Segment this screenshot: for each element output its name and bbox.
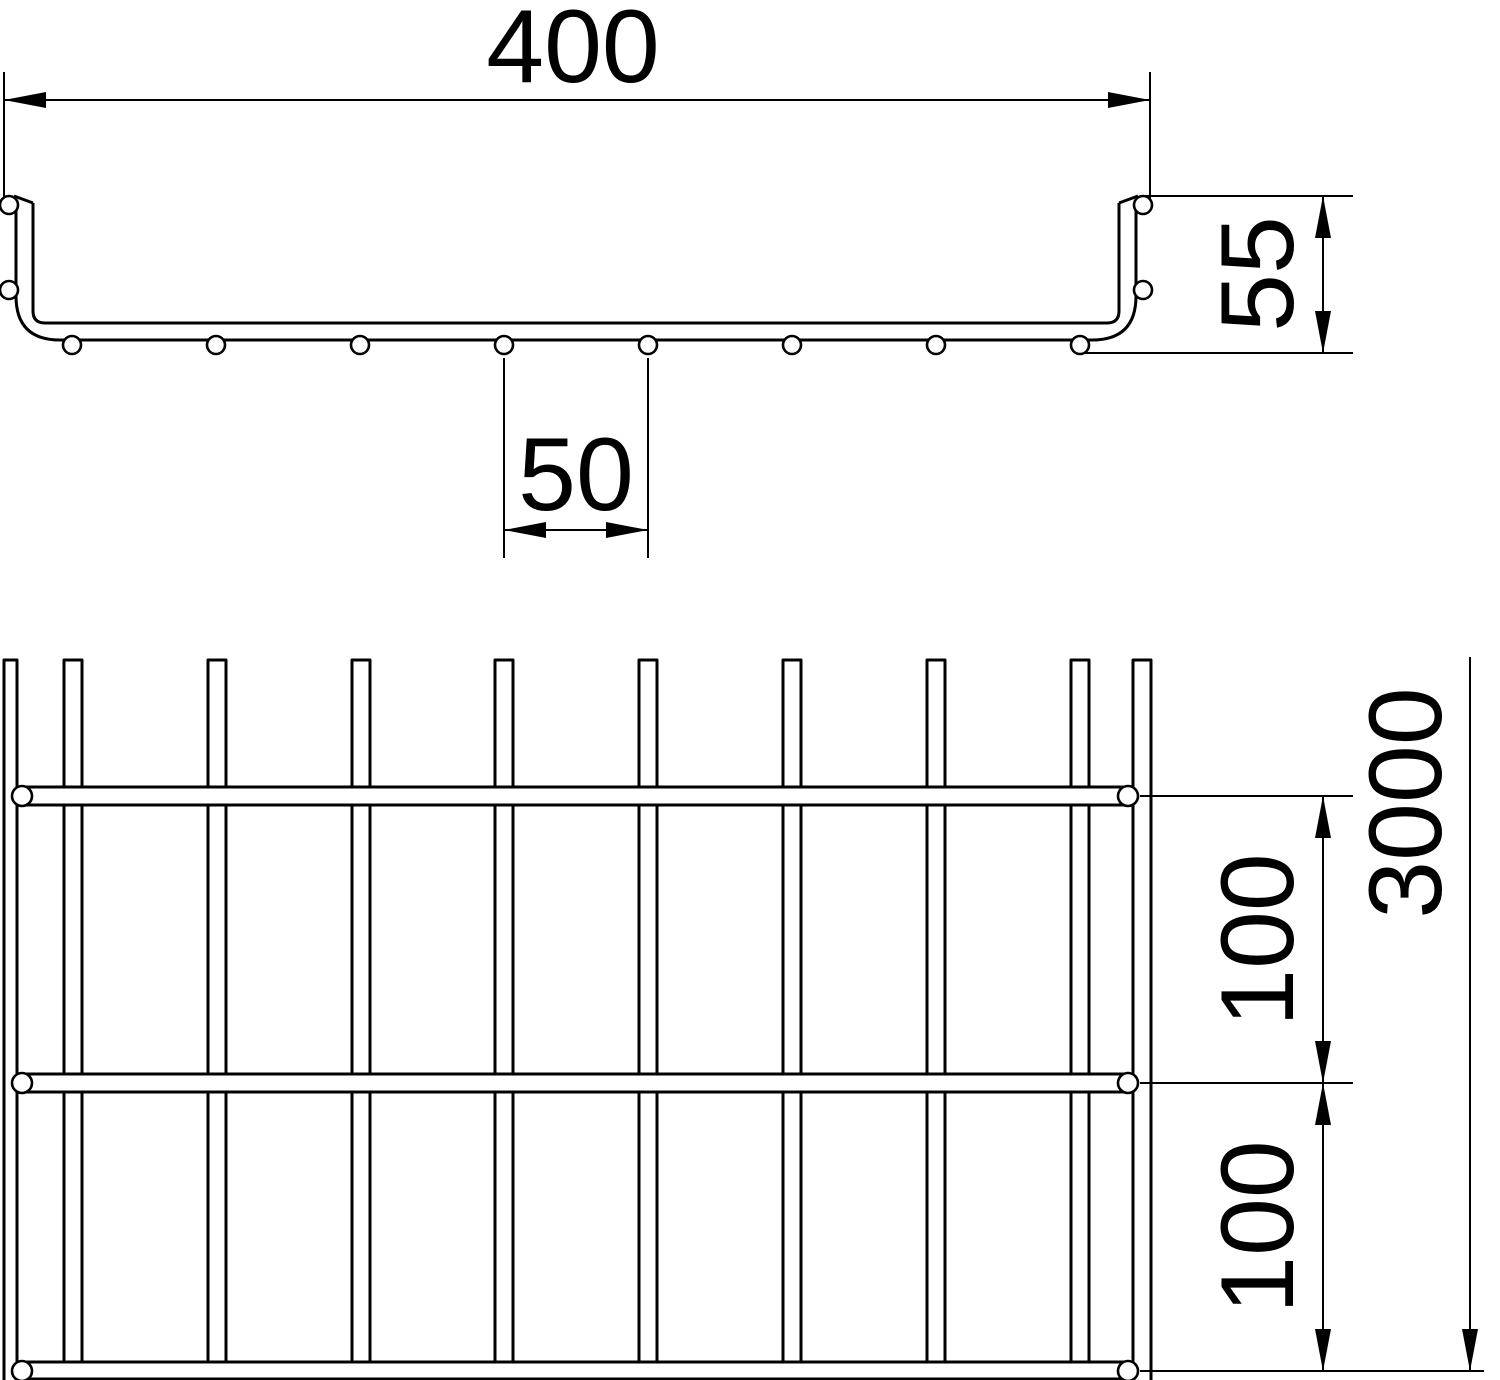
dim-offset2-arrow-bottom — [1315, 1329, 1331, 1371]
rung-wire-8 — [1071, 336, 1089, 354]
side-wire-left-bottom — [0, 281, 18, 299]
dim-offset1-arrow-top — [1315, 796, 1331, 838]
dim-width-arrow-right — [1108, 92, 1150, 108]
long-wire-2-end-right — [1118, 1073, 1138, 1093]
long-wire-1-body — [22, 787, 1128, 805]
long-wire-1-end-right — [1118, 786, 1138, 806]
long-wire-2-end-left — [12, 1073, 32, 1093]
dim-wire-offset-1-label: 100 — [1200, 853, 1316, 1027]
dim-wire-offset-1: 100 — [1140, 796, 1353, 1083]
technical-drawing-page: 400 50 55 — [0, 0, 1500, 1380]
dim-length-arrow-bottom — [1462, 1329, 1478, 1371]
dim-length-label: 3000 — [1348, 687, 1464, 918]
dim-width: 400 — [4, 0, 1150, 199]
plan-side-rail-left — [4, 660, 17, 1380]
long-wire-3-end-right — [1118, 1361, 1138, 1380]
dim-offset2-arrow-top — [1315, 1083, 1331, 1125]
dim-rung-pitch: 50 — [504, 358, 648, 558]
plan-rung-8 — [1071, 660, 1089, 1380]
plan-rung-7 — [927, 660, 945, 1380]
long-wire-1-end-left — [12, 786, 32, 806]
dim-rung-pitch-label: 50 — [518, 417, 634, 533]
dim-height-arrow-bottom — [1315, 311, 1331, 353]
dim-wire-offset-2: 100 — [1140, 1083, 1484, 1371]
side-wire-left-top — [0, 196, 18, 214]
tray-profile — [14, 196, 1138, 340]
profile-outer-line — [16, 207, 1136, 340]
profile-inner-line — [33, 203, 1119, 323]
plan-rung-6 — [783, 660, 801, 1380]
dim-height-label: 55 — [1200, 216, 1316, 332]
rung-wire-7 — [927, 336, 945, 354]
rung-wire-5 — [639, 336, 657, 354]
rung-wire-2 — [207, 336, 225, 354]
rung-wire-1 — [63, 336, 81, 354]
dim-width-label: 400 — [486, 0, 660, 105]
dim-length: 3000 — [1348, 657, 1478, 1371]
plan-rung-2 — [208, 660, 226, 1380]
plan-rung-3 — [352, 660, 370, 1380]
side-wire-right-bottom — [1134, 281, 1152, 299]
cross-section-view: 400 50 55 — [0, 0, 1353, 558]
plan-view: 100 100 3000 — [4, 657, 1484, 1380]
cable-tray-drawing: 400 50 55 — [0, 0, 1500, 1380]
plan-rung-1 — [64, 660, 82, 1380]
dim-height-arrow-top — [1315, 196, 1331, 238]
long-wire-3-body — [22, 1362, 1128, 1380]
rung-wire-6 — [783, 336, 801, 354]
plan-rung-4 — [495, 660, 513, 1380]
dim-wire-offset-2-label: 100 — [1200, 1140, 1316, 1314]
plan-longitudinal-wires — [12, 786, 1138, 1380]
rung-wire-3 — [351, 336, 369, 354]
plan-rung-5 — [639, 660, 657, 1380]
plan-grid-bars — [4, 660, 1151, 1380]
dim-width-arrow-left — [4, 92, 46, 108]
long-wire-2-body — [22, 1074, 1128, 1092]
long-wire-3-end-left — [12, 1361, 32, 1380]
rung-wire-4 — [495, 336, 513, 354]
side-wire-right-top — [1134, 196, 1152, 214]
cross-section-wires — [0, 196, 1152, 354]
plan-side-rail-right — [1133, 660, 1151, 1380]
dim-offset1-arrow-bottom — [1315, 1041, 1331, 1083]
